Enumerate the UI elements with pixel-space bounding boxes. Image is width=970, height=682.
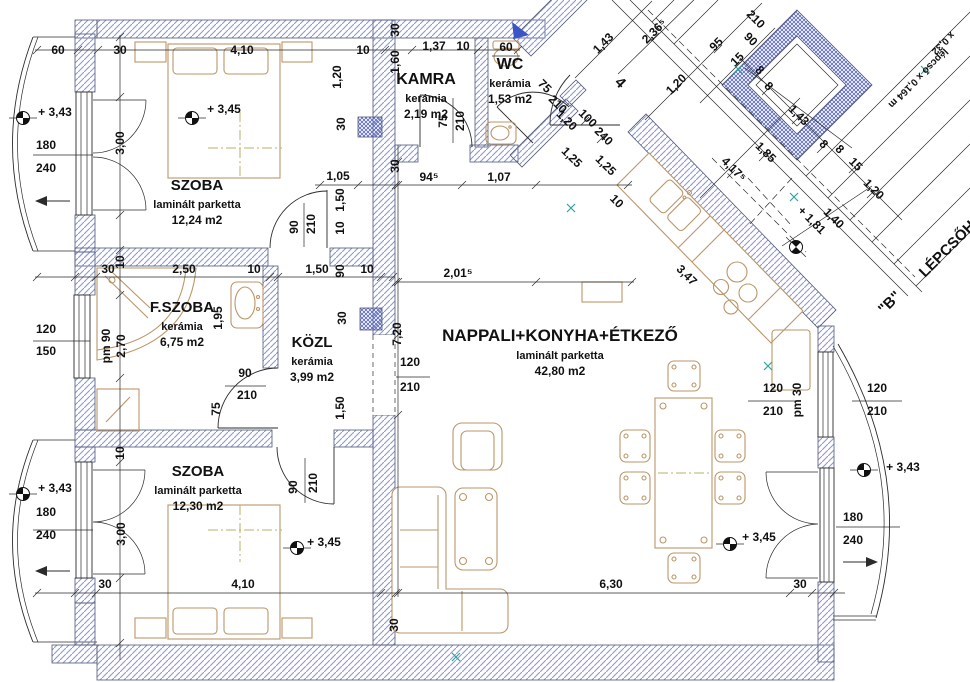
dim-label: 120	[400, 355, 420, 369]
dim-label: 3,00	[114, 522, 128, 546]
dim-label: 10	[356, 43, 370, 57]
dim-label: 120	[867, 381, 887, 395]
dim-label: 1,50	[333, 396, 347, 420]
dim-label: 8	[833, 142, 848, 157]
dim-label: 240	[36, 161, 56, 175]
dim-label: 10	[113, 446, 127, 460]
dim-label: 30	[793, 577, 807, 591]
dim-label: 1,25	[559, 144, 586, 171]
dim-label: 180	[36, 505, 56, 519]
dim-label: 2,50	[172, 262, 196, 276]
room-area: 3,99 m2	[290, 370, 334, 384]
dim-label: pm 90	[99, 328, 113, 363]
dim-label: 30	[98, 577, 112, 591]
room-title: NAPPALI+KONYHA+ÉTKEZŐ	[442, 326, 678, 345]
dim-label: 4,10	[230, 43, 254, 57]
dim-label: 240	[843, 533, 863, 547]
room-title: KAMRA	[396, 71, 456, 88]
room-floor: kerámia	[161, 321, 203, 333]
dim-label: LÉPCSŐHÁZ	[915, 203, 970, 281]
room-title: SZOBA	[172, 463, 225, 480]
french-door-bottom-left	[76, 462, 145, 578]
dim-label: 1,25	[593, 152, 620, 179]
dim-label: 30	[335, 311, 349, 325]
dim-label: 60	[51, 43, 65, 57]
dim-label: 15	[846, 154, 866, 174]
dim-label: 90	[238, 366, 252, 380]
dim-label: + 3,43	[886, 460, 920, 474]
console-table	[582, 282, 622, 302]
dim-label: 10	[247, 262, 261, 276]
dim-label: 1,20	[861, 176, 888, 203]
dim-label: 1,07	[487, 170, 511, 184]
dim-label: 120	[763, 381, 783, 395]
dim-label: + 3,43	[38, 105, 72, 119]
dim-label: 10	[456, 39, 470, 53]
dim-label: 1,85	[753, 139, 780, 166]
dim-label: 10	[360, 262, 374, 276]
room-title: WC	[497, 56, 524, 73]
door-swing-arrow-right	[843, 557, 878, 567]
dim-label: + 3,43	[38, 481, 72, 495]
dim-label: 2,70	[114, 334, 128, 358]
door-szoba1	[270, 190, 327, 248]
dim-label: "B"	[875, 288, 905, 318]
room-title: F.SZOBA	[150, 299, 214, 316]
floor-plan-svg: 60304,10101,371060301,601,20307521030752…	[0, 0, 970, 682]
room-area: 2,19 m2	[404, 107, 448, 121]
bed-bottom	[135, 505, 312, 639]
room-floor: kerámia	[405, 93, 447, 105]
dim-label: 210	[453, 111, 467, 131]
dim-label: 240	[36, 528, 56, 542]
dim-label: 10	[113, 255, 127, 269]
room-floor: kerámia	[291, 356, 333, 368]
french-door-right	[766, 468, 834, 582]
dim-label: pm 30	[790, 382, 804, 417]
sofa	[392, 487, 508, 633]
dim-label: + 3,45	[307, 535, 341, 549]
dim-label: 180	[36, 138, 56, 152]
dim-label: 90	[333, 264, 347, 278]
armchair	[453, 423, 502, 470]
room-area: 12,30 m2	[173, 499, 224, 513]
dim-label: 210	[306, 473, 320, 493]
dim-label: 1,05	[326, 169, 350, 183]
dim-label: 10	[333, 221, 347, 235]
dim-label: 4,10	[231, 577, 255, 591]
dim-label: 210	[237, 388, 257, 402]
dim-label: + 3,45	[207, 102, 241, 116]
dim-label: 120	[36, 322, 56, 336]
dim-label: 1,50	[305, 262, 329, 276]
dim-label: 210	[763, 404, 783, 418]
dim-label: 30	[388, 23, 402, 37]
room-area: 42,80 m2	[535, 364, 586, 378]
dim-label: 30	[113, 43, 127, 57]
room-area: 1,53 m2	[488, 92, 532, 106]
washing-machine	[97, 389, 139, 431]
dim-label: 30	[334, 117, 348, 131]
room-title: KÖZL	[292, 334, 333, 351]
dim-label: 90	[741, 29, 761, 49]
bathroom-sink	[231, 282, 263, 328]
dim-label: 1,20	[663, 71, 690, 98]
dim-label: 2,01⁵	[444, 266, 473, 280]
dim-label: 210	[304, 214, 318, 234]
floor-plan-page: 60304,10101,371060301,601,20307521030752…	[0, 0, 970, 682]
room-area: 6,75 m2	[160, 335, 204, 349]
door-swing-arrow-left-top	[35, 196, 70, 206]
dim-label: 95	[706, 34, 726, 54]
dim-label: 30	[387, 618, 401, 632]
dim-label: 4	[611, 74, 629, 92]
room-floor: laminált parketta	[516, 350, 604, 362]
dim-label: 30	[388, 159, 402, 173]
dim-label: 240	[592, 124, 616, 148]
dim-label: 75	[535, 76, 555, 96]
dim-label: 8	[817, 137, 832, 152]
dim-label: 1,37	[422, 39, 446, 53]
dim-label: + 1,81	[795, 203, 829, 237]
pocket-door	[373, 335, 395, 415]
window-right	[818, 352, 833, 437]
room-floor: kerámia	[489, 78, 531, 90]
window-fszoba	[74, 295, 90, 378]
dim-label: 6,30	[599, 577, 623, 591]
dim-label: 210	[400, 380, 420, 394]
dim-label: 10	[607, 191, 627, 211]
dim-label: 100	[576, 106, 600, 130]
room-floor: laminált parketta	[154, 485, 242, 497]
dim-label: 180	[843, 510, 863, 524]
room-title: SZOBA	[171, 177, 224, 194]
dim-label: + 3,45	[742, 530, 776, 544]
french-door-top-left	[76, 92, 146, 215]
dim-label: 8	[762, 79, 777, 94]
dim-label: 3,00	[113, 131, 127, 155]
dim-label: 60	[499, 40, 513, 54]
dim-label: 90	[286, 480, 300, 494]
wc-sink	[486, 122, 516, 144]
dim-label: 1,20	[330, 65, 344, 89]
dim-label: 150	[36, 344, 56, 358]
dim-label: 210	[867, 404, 887, 418]
dim-label: 94⁵	[420, 170, 439, 184]
dim-label: 1,43	[590, 30, 617, 57]
door-swing-arrow-left-bottom	[35, 566, 70, 576]
coffee-table	[455, 488, 497, 570]
room-area: 12,24 m2	[172, 213, 223, 227]
dim-label: 75	[209, 402, 223, 416]
dim-label: 90	[287, 220, 301, 234]
dim-label: lépcső x 0,164 m	[886, 46, 950, 110]
room-floor: laminált parketta	[153, 199, 241, 211]
dim-label: 7,20	[390, 322, 404, 346]
dim-label: 1,50	[333, 188, 347, 212]
dim-label: 210	[744, 7, 768, 31]
